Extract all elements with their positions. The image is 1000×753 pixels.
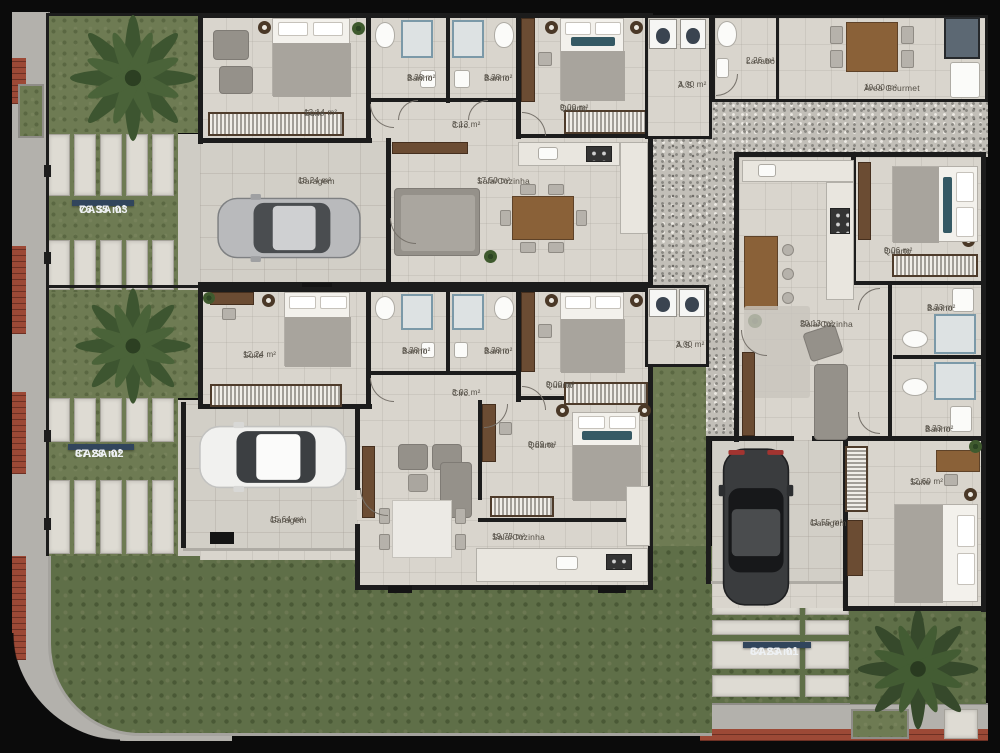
paver [152, 480, 174, 554]
room-area: 3.00 m² [676, 340, 705, 350]
wall-light [964, 488, 977, 501]
wall [706, 436, 739, 441]
wall [846, 436, 986, 441]
accent-pillow [582, 431, 632, 440]
car-white [194, 422, 352, 492]
chair [379, 534, 390, 550]
potted-plant [484, 250, 497, 263]
desk [210, 292, 254, 305]
grass-inset-top [18, 84, 44, 138]
gourmet-sink [950, 62, 980, 98]
palm-tree [58, 8, 208, 148]
paver [74, 480, 96, 554]
pillow [565, 22, 591, 35]
corner-mask [12, 633, 120, 741]
wall [734, 152, 986, 157]
paver [48, 480, 70, 554]
double-bed [892, 166, 978, 242]
wall-light [258, 21, 271, 34]
chair [830, 50, 843, 68]
toilet [902, 378, 928, 396]
wall-light [262, 294, 275, 307]
cooktop [606, 554, 632, 570]
blanket [893, 167, 939, 243]
wall-light [556, 404, 569, 417]
frame-left [0, 0, 12, 753]
gourmet-table [846, 22, 898, 72]
double-bed [894, 504, 978, 602]
pillow [320, 296, 347, 309]
potted-plant [352, 22, 365, 35]
shower-box [934, 314, 976, 354]
armchair [219, 66, 253, 94]
cooktop [830, 208, 850, 234]
site-plan: Suite12.14 m² Banho3.38 m² Banho3.38 m² … [0, 0, 1000, 753]
dryer [679, 289, 705, 317]
grill-counter [944, 17, 980, 59]
chair [830, 26, 843, 44]
paver [712, 675, 800, 697]
fence-post [44, 430, 51, 442]
chair [455, 508, 466, 524]
pouf [408, 474, 428, 492]
wall [851, 281, 986, 285]
wall [386, 138, 391, 287]
room-area: 11.55 m² [810, 518, 843, 528]
desk-chair [538, 52, 552, 66]
paver [712, 620, 800, 635]
pillow [289, 296, 316, 309]
desk-chair [222, 308, 236, 320]
garage-slab-edge [183, 548, 357, 551]
room-area: 3.38 m² [484, 346, 513, 356]
wall [734, 152, 739, 442]
shower-box [401, 294, 433, 330]
wall [355, 408, 360, 490]
accent-pillow [571, 37, 615, 46]
chair [576, 210, 587, 226]
wall [888, 285, 892, 440]
wall-light [630, 21, 643, 34]
blanket [273, 43, 351, 97]
wardrobe [210, 384, 342, 407]
armchair [213, 30, 249, 60]
fence-post [44, 165, 51, 177]
sofa [814, 364, 848, 440]
closet-column [521, 18, 535, 102]
room-area: 3.38 m² [402, 346, 431, 356]
wall [893, 355, 986, 359]
potted-plant [203, 292, 215, 304]
wall [198, 138, 372, 143]
paver [805, 620, 849, 635]
shower-box [934, 362, 976, 400]
blanket [561, 319, 625, 373]
cooktop [586, 146, 612, 162]
frame-bottom [0, 741, 1000, 753]
room-area: 3.00 m² [678, 80, 707, 90]
wardrobe [892, 254, 978, 277]
stool [782, 268, 794, 280]
side-grass-strip [645, 367, 706, 552]
accent-pillow [943, 177, 952, 233]
wall [366, 98, 520, 102]
toilet [717, 21, 737, 47]
room-area: 19.75 m² [492, 532, 525, 542]
brick-strip [12, 246, 26, 334]
chair [548, 184, 564, 195]
chair [548, 242, 564, 253]
room-area: 3.38 m² [484, 73, 513, 83]
pillow [957, 515, 975, 547]
chair [901, 26, 914, 44]
casa03-badge: CASA 03 76.35 m² [72, 200, 134, 206]
wall [739, 436, 794, 441]
paver [805, 641, 849, 669]
wall [366, 287, 371, 409]
car-silver [206, 194, 372, 262]
car-dark-body [718, 446, 794, 608]
stool [782, 244, 794, 256]
chair [901, 50, 914, 68]
room-area: 2.26 m² [746, 56, 775, 66]
room-area: 3.13 m² [452, 120, 481, 130]
wall-light [545, 21, 558, 34]
casa01-badge: CASA 01 84.23 m² [743, 642, 811, 648]
frame-right [988, 0, 1000, 753]
fence-post [44, 252, 51, 264]
garage-apron [178, 134, 202, 290]
pillow [565, 296, 591, 309]
room-area: 12.60 m² [910, 477, 943, 487]
dining-table [512, 196, 574, 240]
car-dark [718, 446, 794, 608]
wall-light [545, 294, 558, 307]
bathroom-sink [454, 70, 470, 88]
kitchen-island [744, 236, 778, 310]
pillow [957, 553, 975, 585]
stool [782, 292, 794, 304]
desk-chair [538, 324, 552, 338]
room-area: 18.24 m² [298, 176, 331, 186]
pillow [578, 416, 605, 429]
casa02-badge: CASA 02 87.28 m² [68, 444, 134, 450]
potted-plant [969, 440, 982, 453]
garage-pad [210, 532, 234, 544]
room-area: 9.89 m² [528, 440, 557, 450]
armchair [398, 444, 428, 470]
gravel-path [645, 137, 706, 289]
room-area: 3.38 m² [407, 73, 436, 83]
gravel-band-top [746, 100, 988, 157]
kitchen-cabinet [620, 142, 648, 234]
chair [500, 210, 511, 226]
room-area: 9.00 m² [546, 380, 575, 390]
chair [455, 534, 466, 550]
palm-tree [850, 602, 986, 736]
shower-box [452, 294, 484, 330]
paver [805, 675, 849, 697]
room-area: 15.64 m² [270, 515, 303, 525]
double-bed [284, 292, 350, 366]
closet-column [858, 162, 871, 240]
shower-box [452, 20, 484, 58]
room-area: 3.33 m² [927, 303, 956, 313]
pillow [595, 296, 621, 309]
toilet [494, 296, 514, 320]
wall [446, 287, 450, 375]
washer [649, 289, 677, 317]
dryer [680, 19, 706, 49]
desk-chair [499, 422, 512, 435]
driveway-casa02 [48, 396, 178, 556]
tv-cabinet [392, 142, 468, 154]
pillow [956, 207, 974, 237]
blanket [561, 51, 625, 101]
paver [100, 480, 122, 554]
frame-top [0, 0, 1000, 12]
pillow [313, 22, 343, 36]
room-area: 12.14 m² [304, 108, 337, 118]
toilet [494, 22, 514, 48]
kitchen-cabinet [626, 486, 650, 546]
pillow [595, 22, 621, 35]
wardrobe [490, 496, 554, 517]
blanket [285, 317, 351, 367]
chair [520, 242, 536, 253]
casa-area: 76.35 m² [79, 203, 126, 218]
wall [355, 524, 360, 588]
pillow [609, 416, 636, 429]
room-area: 17.50 m² [477, 176, 510, 186]
room-area: 9.06 m² [884, 246, 913, 256]
bathroom-sink [454, 342, 468, 358]
washer [649, 19, 677, 49]
room-area: 20.13 m² [800, 319, 833, 329]
wall [706, 436, 711, 584]
wardrobe [564, 382, 648, 405]
dining-table [392, 500, 452, 558]
double-bed [272, 18, 350, 96]
room-area: 3.33 m² [925, 424, 954, 434]
wall [181, 402, 186, 548]
wall [198, 287, 203, 409]
room-area: 3.03 m² [452, 388, 481, 398]
wall [366, 13, 371, 143]
pillow [278, 22, 308, 36]
desk [936, 450, 980, 472]
paver [126, 480, 148, 554]
kitchen-counter [826, 182, 854, 300]
palm-tree [63, 282, 203, 410]
room-area: 10.00 m² [864, 83, 897, 93]
toilet [375, 22, 395, 48]
pillow [956, 172, 974, 202]
fence-post [44, 518, 51, 530]
shower-box [401, 20, 433, 58]
wall [843, 606, 986, 611]
double-bed [560, 292, 624, 372]
threshold [388, 586, 412, 593]
kitchen-sink [538, 147, 558, 160]
toilet [375, 296, 395, 320]
room-area: 12.24 m² [243, 350, 276, 360]
wall [981, 152, 986, 612]
closet-column [847, 520, 863, 576]
wall [366, 371, 520, 375]
wall [446, 13, 450, 103]
casa-area: 84.23 m² [750, 645, 797, 660]
toilet [902, 330, 928, 348]
blanket [895, 505, 943, 603]
kitchen-sink [758, 164, 776, 177]
wall [198, 13, 203, 144]
tv-cabinet [742, 352, 755, 436]
brick-strip [12, 392, 26, 474]
double-bed [560, 18, 624, 100]
threshold [598, 586, 626, 593]
closet-column [521, 292, 535, 372]
kitchen-sink [556, 556, 578, 570]
wardrobe [845, 446, 868, 512]
desk-chair [944, 474, 958, 486]
room-area: 9.00 m² [560, 103, 589, 113]
casa-area: 87.28 m² [75, 447, 122, 462]
wall-light [630, 294, 643, 307]
